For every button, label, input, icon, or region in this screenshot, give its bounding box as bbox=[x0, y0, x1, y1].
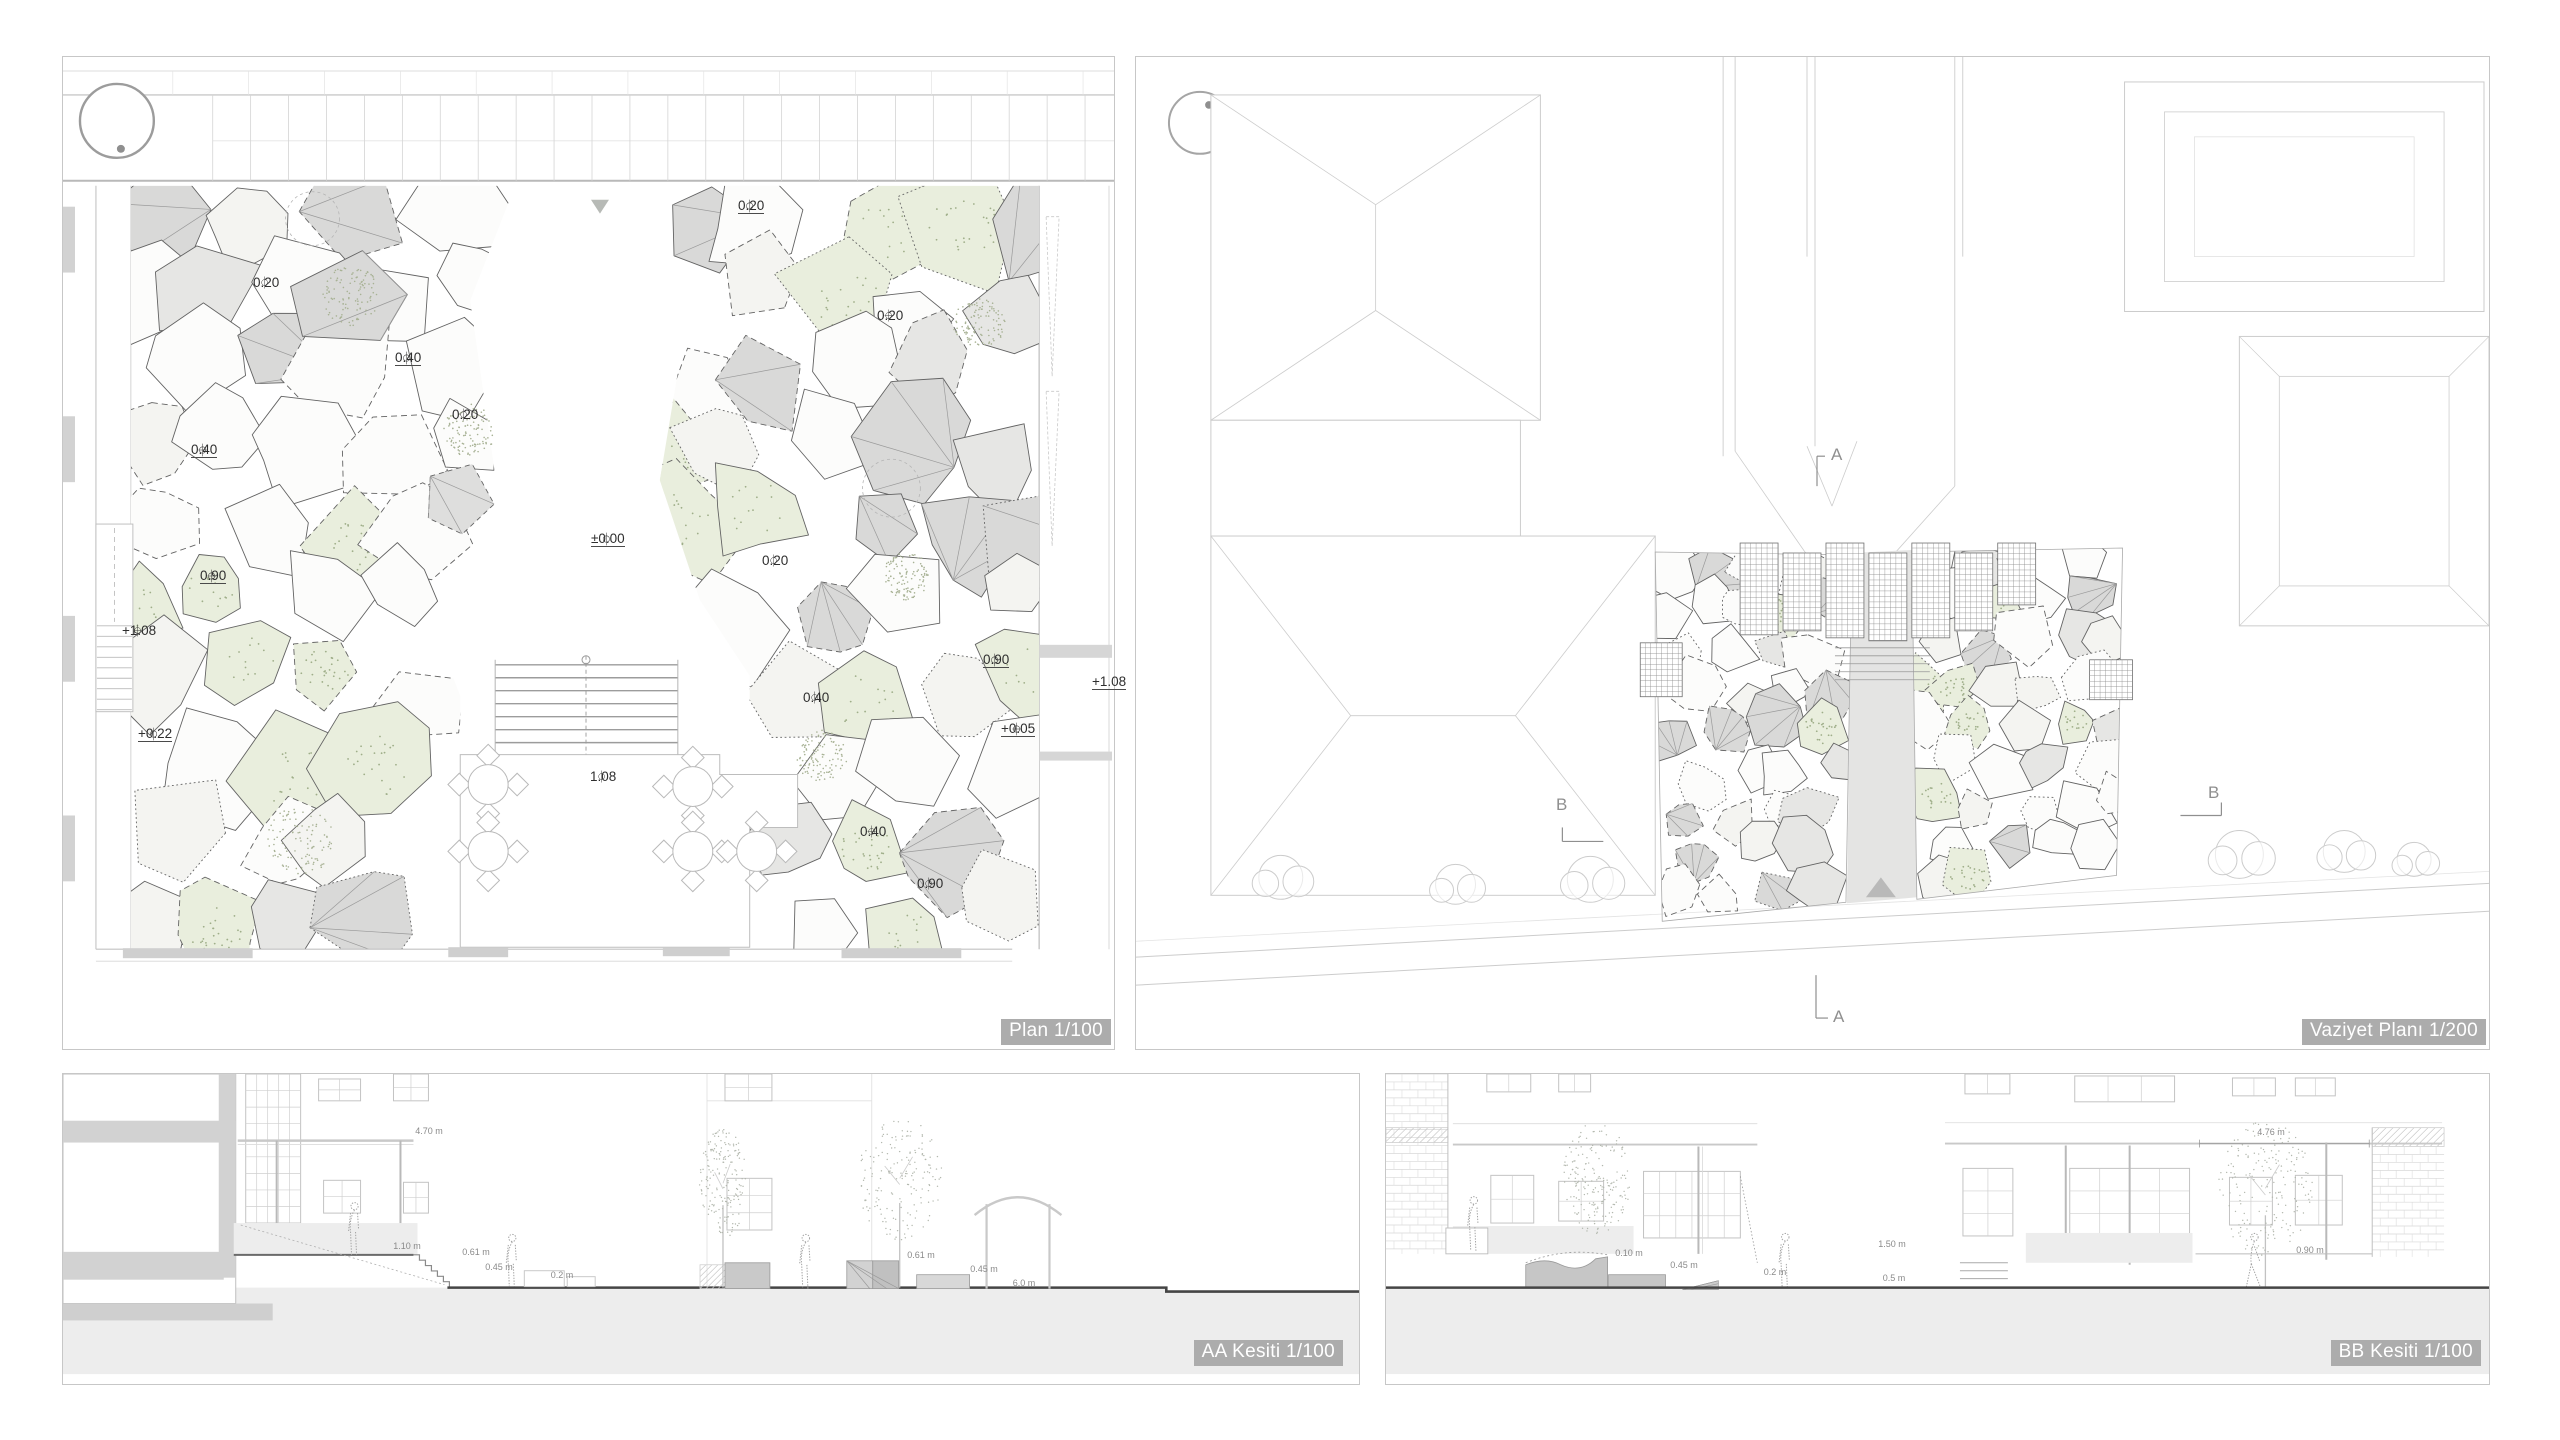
section-aa-panel: 4.70 m1.10 m0.61 m0.45 m0.2 m0.61 m0.45 … bbox=[62, 1073, 1360, 1385]
section-aa-drawing bbox=[63, 1074, 1359, 1384]
plan-drawing bbox=[63, 57, 1114, 1049]
section-aa-title: AA Kesiti 1/100 bbox=[1194, 1340, 1343, 1366]
north-indicator-icon bbox=[80, 84, 154, 158]
section-bb-panel: 4.76 m0.10 m0.45 m0.2 m1.50 m0.5 m0.90 m… bbox=[1385, 1073, 2490, 1385]
site-plan-panel: AABB Vaziyet Planı 1/200 bbox=[1135, 56, 2490, 1050]
plan-panel: 0.200.400.200.200.200.40±0.000.200.90+1.… bbox=[62, 56, 1115, 1050]
section-bb-drawing bbox=[1386, 1074, 2489, 1384]
site-plan-title: Vaziyet Planı 1/200 bbox=[2302, 1019, 2486, 1045]
site-plan-drawing bbox=[1136, 57, 2489, 1049]
section-bb-title: BB Kesiti 1/100 bbox=[2331, 1340, 2481, 1366]
architectural-sheet: { "sheet": {"background": "#ffffff"}, "c… bbox=[0, 0, 2560, 1440]
plan-title: Plan 1/100 bbox=[1001, 1019, 1111, 1045]
